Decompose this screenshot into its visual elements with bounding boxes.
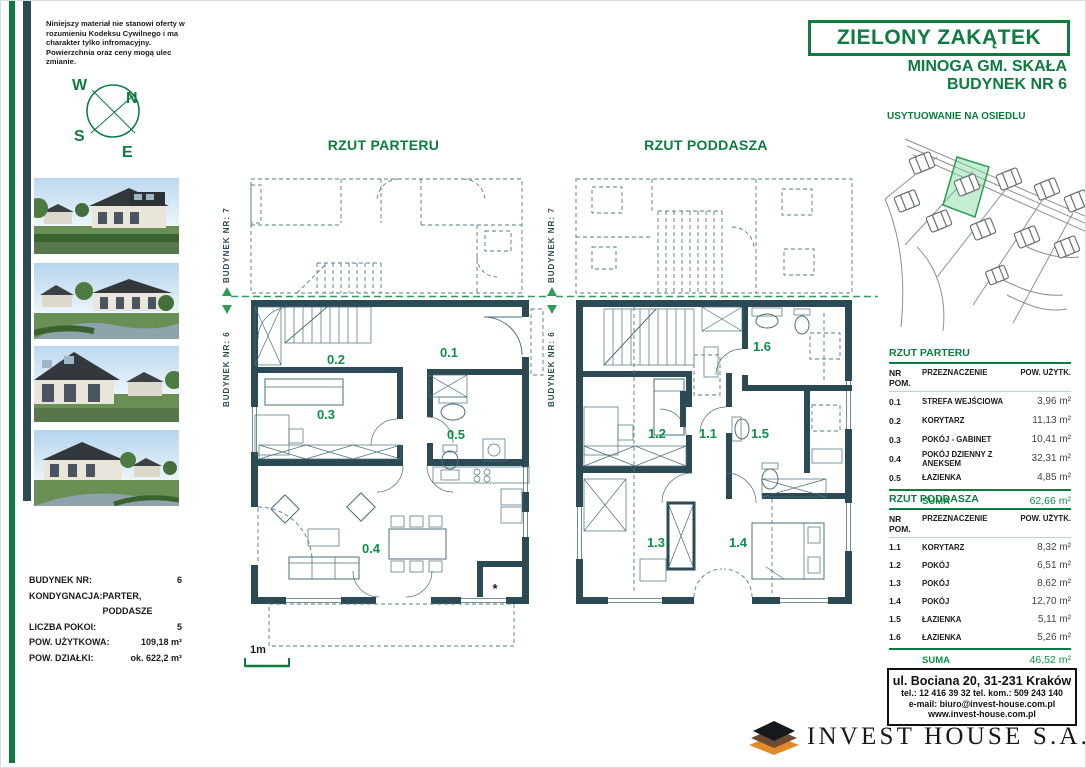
table-title: RZUT PODDASZA	[889, 493, 1071, 508]
poddasze-plan-title: RZUT PODDASZA	[556, 137, 856, 153]
render-photo-2	[34, 263, 179, 339]
project-building: BUDYNEK NR 6	[747, 76, 1067, 94]
render-photo-3	[34, 346, 179, 422]
info-row: LICZBA POKOI:5	[29, 620, 182, 636]
asterisk-mark: *	[492, 581, 498, 596]
invest-house-logo-text: INVEST HOUSE S.A.	[807, 723, 1086, 751]
render-photo-1	[34, 178, 179, 254]
room-label-1-6: 1.6	[753, 339, 771, 354]
table-row: 0.3POKÓJ - GABINET10,41 m²	[889, 430, 1071, 449]
floor-plan-parter: 0.2 0.1 0.3 0.5 0.4 *	[231, 167, 546, 667]
room-label-1-5: 1.5	[751, 426, 769, 441]
info-row: POW. UŻYTKOWA:109,18 m²	[29, 635, 182, 651]
building-info: BUDYNEK NR:6 KONDYGNACJA:PARTER, PODDASZ…	[29, 573, 182, 667]
table-row: 1.1KORYTARZ8,32 m²	[889, 538, 1071, 556]
brochure-page: Niniejszy materiał nie stanowi oferty w …	[0, 0, 1086, 768]
contact-box: ul. Bociana 20, 31-231 Kraków tel.: 12 4…	[887, 668, 1077, 726]
disclaimer-text: Niniejszy materiał nie stanowi oferty w …	[46, 19, 193, 67]
table-header: NR POM. PRZEZNACZENIE POW. UŻYTK.	[889, 364, 1071, 392]
info-row: POW. DZIAŁKI:ok. 622,2 m²	[29, 651, 182, 667]
green-stripe	[9, 1, 15, 763]
compass-w: W	[72, 77, 88, 94]
project-title: ZIELONY ZAKĄTEK	[837, 26, 1041, 50]
compass-e: E	[122, 144, 133, 161]
table-row: 1.3POKÓJ8,62 m²	[889, 574, 1071, 592]
site-plan-map	[877, 127, 1086, 335]
room-label-1-2: 1.2	[648, 426, 666, 441]
scale-label: 1m	[250, 644, 266, 656]
contact-phone: tel.: 12 416 39 32 tel. kom.: 509 243 14…	[891, 688, 1073, 699]
compass-icon: W N S E	[66, 63, 158, 161]
table-row: 0.2KORYTARZ11,13 m²	[889, 411, 1071, 430]
table-poddasze: RZUT PODDASZA NR POM. PRZEZNACZENIE POW.…	[889, 493, 1071, 670]
compass-n: N	[126, 90, 138, 107]
table-row: 0.1STREFA WEJŚCIOWA3,96 m²	[889, 392, 1071, 411]
compass-s: S	[74, 128, 85, 145]
room-label-0-3: 0.3	[317, 407, 335, 422]
dark-stripe	[23, 1, 31, 501]
room-label-1-1: 1.1	[699, 426, 717, 441]
table-suma-row: SUMA46,52 m²	[889, 648, 1071, 670]
table-row: 1.5ŁAZIENKA5,11 m²	[889, 610, 1071, 628]
table-header: NR POM. PRZEZNACZENIE POW. UŻYTK.	[889, 510, 1071, 538]
project-title-box: ZIELONY ZAKĄTEK	[808, 20, 1070, 56]
project-location: MINOGA GM. SKAŁA	[747, 58, 1067, 76]
room-label-0-1: 0.1	[440, 345, 458, 360]
table-row: 0.5ŁAZIENKA4,85 m²	[889, 468, 1071, 487]
contact-website: www.invest-house.com.pl	[891, 709, 1073, 720]
room-label-1-3: 1.3	[647, 535, 665, 550]
table-row: 1.2POKÓJ6,51 m²	[889, 556, 1071, 574]
room-label-1-4: 1.4	[729, 535, 748, 550]
table-title: RZUT PARTERU	[889, 347, 1071, 362]
parter-plan-title: RZUT PARTERU	[231, 137, 536, 153]
info-row: BUDYNEK NR:6	[29, 573, 182, 589]
table-row: 0.4POKÓJ DZIENNY Z ANEKSEM32,31 m²	[889, 449, 1071, 468]
scale-bar	[242, 656, 292, 670]
render-photo-4	[34, 430, 179, 506]
siteplan-title: USYTUOWANIE NA OSIEDLU	[887, 111, 1026, 122]
info-row: KONDYGNACJA:PARTER, PODDASZE	[29, 589, 182, 620]
table-row: 1.4POKÓJ12,70 m²	[889, 592, 1071, 610]
invest-house-logo-icon	[747, 721, 801, 757]
room-label-0-2: 0.2	[327, 352, 345, 367]
room-label-0-5: 0.5	[447, 427, 465, 442]
table-parter: RZUT PARTERU NR POM. PRZEZNACZENIE POW. …	[889, 347, 1071, 511]
room-label-0-4: 0.4	[362, 541, 381, 556]
table-row: 1.6ŁAZIENKA5,26 m²	[889, 628, 1071, 646]
contact-email: e-mail: biuro@invest-house.com.pl	[891, 699, 1073, 710]
floor-plan-poddasze: 1.6 1.2 1.1 1.5 1.3 1.4	[556, 167, 878, 667]
contact-address: ul. Bociana 20, 31-231 Kraków	[891, 674, 1073, 688]
